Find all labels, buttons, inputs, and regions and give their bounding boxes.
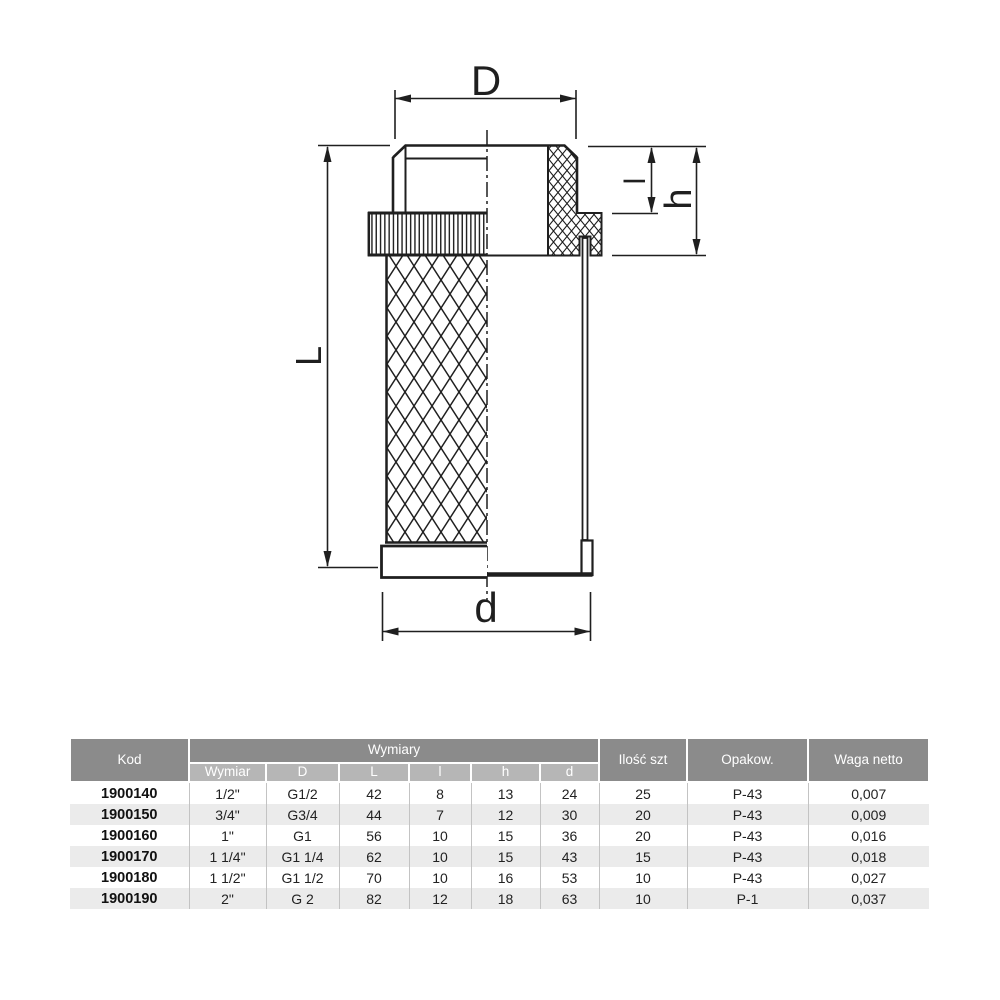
cell: 30: [540, 804, 599, 825]
sub-header-D: D: [266, 763, 339, 782]
cell: 70: [339, 867, 409, 888]
col-header-kod: Kod: [70, 738, 189, 782]
cell: P-43: [687, 867, 808, 888]
cell: P-1: [687, 888, 808, 909]
cell: 42: [339, 782, 409, 804]
cell: 43: [540, 846, 599, 867]
cell: 82: [339, 888, 409, 909]
cell-kod: 1900140: [70, 782, 189, 804]
sub-header-wymiar: Wymiar: [189, 763, 266, 782]
cell: G3/4: [266, 804, 339, 825]
knurled-flange: [369, 215, 487, 254]
cell-kod: 1900190: [70, 888, 189, 909]
table-row: 1900150 3/4" G3/4 44 7 12 30 20 P-43 0,0…: [70, 804, 929, 825]
cell: G1: [266, 825, 339, 846]
cell: 1 1/4": [189, 846, 266, 867]
technical-drawing: D L d l h: [0, 0, 1000, 737]
cell: G1/2: [266, 782, 339, 804]
cell: 0,009: [808, 804, 929, 825]
cell: 10: [599, 867, 687, 888]
dim-label-l: l: [619, 178, 652, 185]
dim-label-h: h: [658, 188, 700, 209]
cell: 16: [471, 867, 540, 888]
cell-kod: 1900160: [70, 825, 189, 846]
cell: 10: [409, 825, 471, 846]
cell: 0,016: [808, 825, 929, 846]
sub-header-h: h: [471, 763, 540, 782]
cell: 44: [339, 804, 409, 825]
strainer-body: [368, 130, 602, 601]
sub-header-L: L: [339, 763, 409, 782]
cell: 53: [540, 867, 599, 888]
cell: 2": [189, 888, 266, 909]
bottom-cap: [382, 546, 488, 578]
dim-label-d: d: [474, 584, 497, 631]
cell: 15: [471, 825, 540, 846]
cell: 15: [471, 846, 540, 867]
section-hatch: [548, 146, 602, 256]
col-header-waga: Waga netto: [808, 738, 929, 782]
cap-rim-section: [582, 541, 593, 576]
cell: 15: [599, 846, 687, 867]
cell: 0,027: [808, 867, 929, 888]
cell: 20: [599, 804, 687, 825]
cell: P-43: [687, 846, 808, 867]
cell: 3/4": [189, 804, 266, 825]
cell: 13: [471, 782, 540, 804]
cell: 24: [540, 782, 599, 804]
cell: 8: [409, 782, 471, 804]
table-row: 1900180 1 1/2" G1 1/2 70 10 16 53 10 P-4…: [70, 867, 929, 888]
col-header-wymiary: Wymiary: [189, 738, 599, 763]
table-row: 1900160 1" G1 56 10 15 36 20 P-43 0,016: [70, 825, 929, 846]
cell-kod: 1900180: [70, 867, 189, 888]
cell: 0,037: [808, 888, 929, 909]
spec-table-container: Kod Wymiary Ilość szt Opakow. Waga netto…: [69, 737, 930, 909]
cell: 62: [339, 846, 409, 867]
cell: 7: [409, 804, 471, 825]
cell: 1/2": [189, 782, 266, 804]
cell: 20: [599, 825, 687, 846]
cell: G1 1/2: [266, 867, 339, 888]
basket-wall-section: [583, 238, 588, 540]
cell: 10: [599, 888, 687, 909]
cell: P-43: [687, 825, 808, 846]
cell: 1": [189, 825, 266, 846]
cell: 0,007: [808, 782, 929, 804]
table-row: 1900170 1 1/4" G1 1/4 62 10 15 43 15 P-4…: [70, 846, 929, 867]
cell: 1 1/2": [189, 867, 266, 888]
cell: 25: [599, 782, 687, 804]
cell: 63: [540, 888, 599, 909]
dimensions: [318, 90, 706, 641]
cell: 10: [409, 867, 471, 888]
mesh-screen: [387, 257, 488, 543]
cell: 36: [540, 825, 599, 846]
cell: 10: [409, 846, 471, 867]
table-row: 1900190 2" G 2 82 12 18 63 10 P-1 0,037: [70, 888, 929, 909]
cell: P-43: [687, 804, 808, 825]
cell: G1 1/4: [266, 846, 339, 867]
spec-table: Kod Wymiary Ilość szt Opakow. Waga netto…: [69, 737, 930, 909]
col-header-opakow: Opakow.: [687, 738, 808, 782]
cell: 56: [339, 825, 409, 846]
cell: G 2: [266, 888, 339, 909]
sub-header-d: d: [540, 763, 599, 782]
cell-kod: 1900170: [70, 846, 189, 867]
cell: 12: [409, 888, 471, 909]
dim-label-L: L: [288, 346, 329, 366]
dim-label-D: D: [471, 57, 501, 104]
cell: P-43: [687, 782, 808, 804]
cell: 0,018: [808, 846, 929, 867]
table-row: 1900140 1/2" G1/2 42 8 13 24 25 P-43 0,0…: [70, 782, 929, 804]
sub-header-l: l: [409, 763, 471, 782]
cell: 18: [471, 888, 540, 909]
catalog-page: D L d l h Kod Wymiary Ilość szt Opakow. …: [0, 0, 1000, 1000]
col-header-ilosc: Ilość szt: [599, 738, 687, 782]
cell: 12: [471, 804, 540, 825]
cell-kod: 1900150: [70, 804, 189, 825]
